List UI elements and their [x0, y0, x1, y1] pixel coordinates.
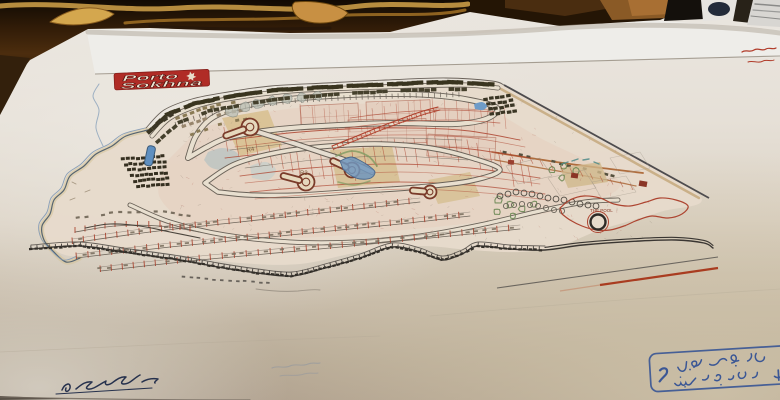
svg-text:THE POOL: THE POOL [590, 208, 613, 213]
svg-text:R3: R3 [300, 171, 308, 177]
